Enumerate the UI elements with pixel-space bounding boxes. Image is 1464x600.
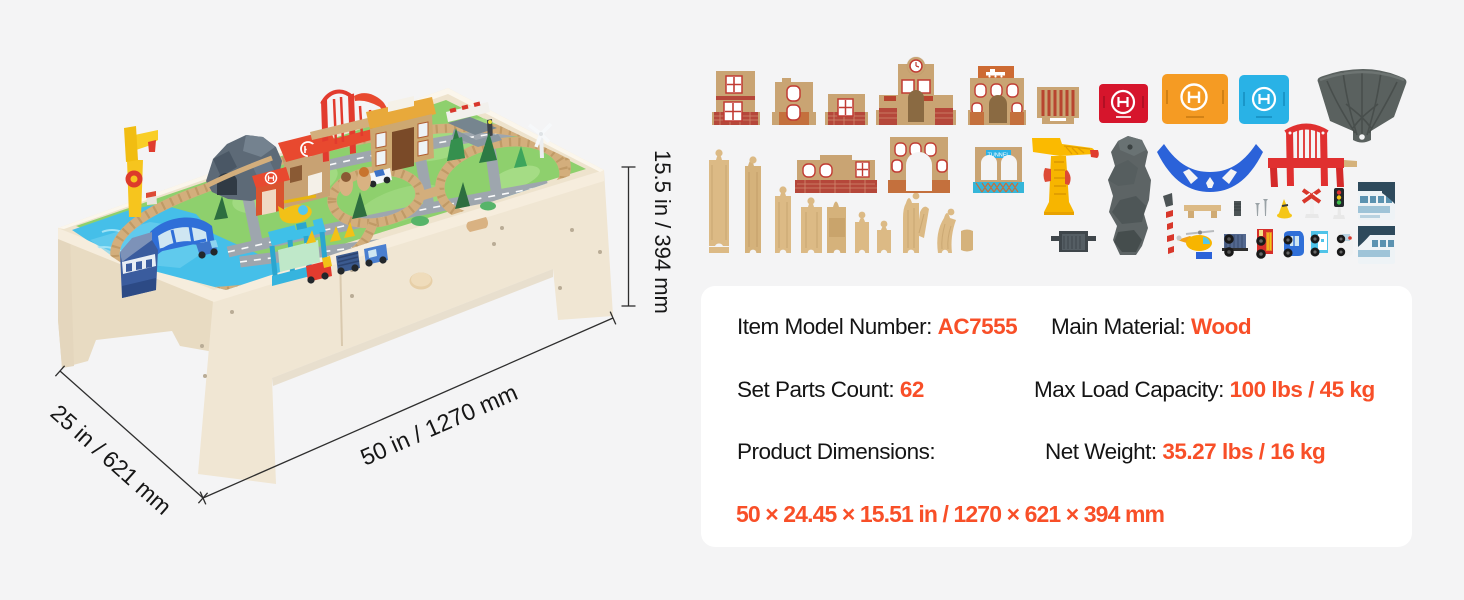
svg-text:50 in / 1270 mm: 50 in / 1270 mm (357, 379, 522, 471)
svg-text:25 in / 621 mm: 25 in / 621 mm (46, 399, 177, 519)
svg-text:15.5 in / 394 mm: 15.5 in / 394 mm (650, 150, 675, 314)
